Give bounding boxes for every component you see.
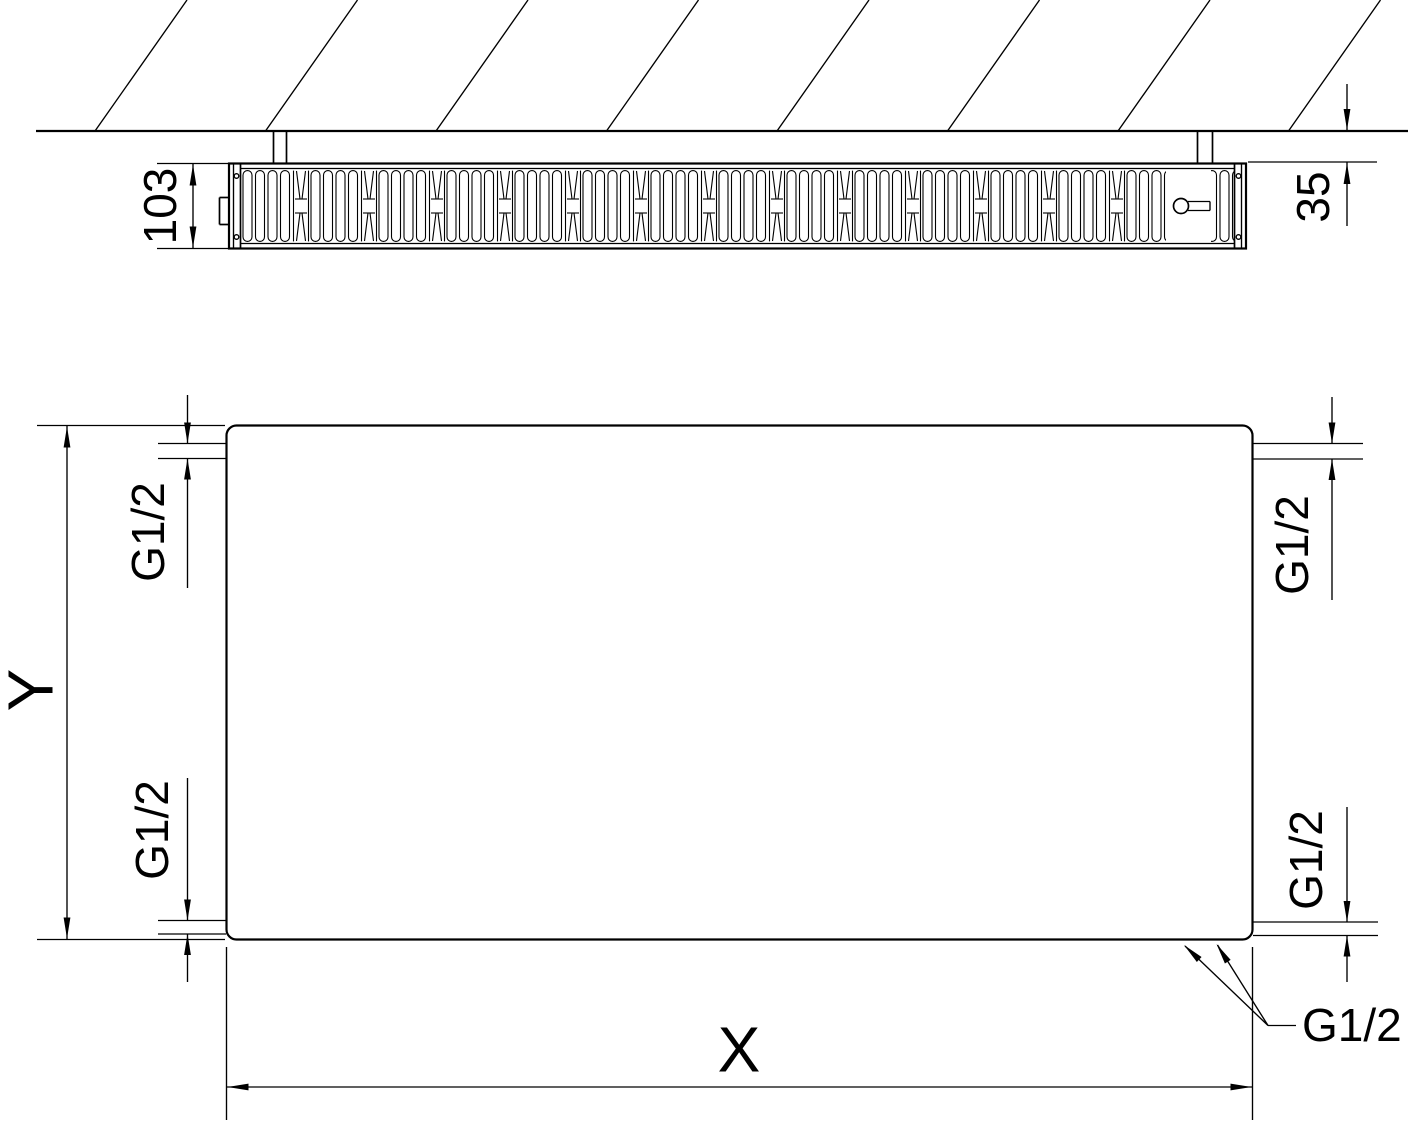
bottom-connections-leader: G1/2 bbox=[1182, 942, 1402, 1051]
arrowhead-down bbox=[190, 227, 197, 248]
arrowhead-down bbox=[184, 900, 191, 921]
width-dimension-value: X bbox=[718, 1013, 761, 1085]
wall-gap-dimension-value: 35 bbox=[1287, 171, 1339, 222]
arrowhead-up bbox=[190, 165, 197, 186]
top-view: 103 35 bbox=[36, 0, 1408, 249]
connection-top-left: G1/2 bbox=[122, 395, 226, 588]
arrowhead-leader bbox=[1214, 942, 1231, 963]
plug-insert bbox=[1174, 199, 1211, 214]
thread-label-bottom-left: G1/2 bbox=[126, 780, 178, 880]
dimension-wall-gap: 35 bbox=[1248, 84, 1377, 226]
thread-label-top-right: G1/2 bbox=[1266, 495, 1318, 595]
hatch-line bbox=[1118, 0, 1210, 131]
arrowhead-down bbox=[64, 918, 71, 939]
side-connection-stub bbox=[220, 198, 230, 225]
radiator-panel-outline bbox=[227, 426, 1253, 940]
convection-fins bbox=[1211, 170, 1234, 242]
arrowhead-up bbox=[184, 934, 191, 955]
connection-bottom-right: G1/2 bbox=[1253, 807, 1378, 982]
hatch-line bbox=[266, 0, 358, 131]
front-view: Y X G1/2 G1/2 bbox=[0, 395, 1402, 1120]
mounting-bracket-left bbox=[274, 131, 287, 164]
arrowhead-down bbox=[184, 423, 191, 444]
thread-label-top-left: G1/2 bbox=[122, 482, 174, 582]
thread-label-leader: G1/2 bbox=[1302, 999, 1402, 1051]
radiator-section bbox=[220, 164, 1247, 249]
arrowhead-up bbox=[64, 427, 71, 448]
radiator-technical-drawing: 103 35 Y X bbox=[0, 0, 1427, 1125]
hatch-line bbox=[607, 0, 699, 131]
convection-fins bbox=[242, 170, 1166, 242]
connection-bottom-left: G1/2 bbox=[126, 778, 226, 982]
hatch-line bbox=[948, 0, 1040, 131]
hatch-line bbox=[777, 0, 869, 131]
height-dimension-value: Y bbox=[0, 669, 66, 712]
plug-circle bbox=[1174, 199, 1189, 214]
arrowhead-down bbox=[1329, 423, 1336, 444]
thread-label-bottom-right: G1/2 bbox=[1280, 810, 1332, 910]
hatch-line bbox=[1289, 0, 1381, 131]
arrowhead-down bbox=[1344, 901, 1351, 922]
end-cap-right bbox=[1235, 165, 1242, 248]
hatch-line bbox=[95, 0, 187, 131]
cap-screw bbox=[234, 235, 239, 240]
dimension-height: Y bbox=[0, 426, 225, 940]
dimension-width: X bbox=[227, 947, 1253, 1120]
cap-screw bbox=[234, 174, 239, 179]
wall-hatch bbox=[95, 0, 1381, 131]
drawing-canvas: 103 35 Y X bbox=[0, 0, 1427, 1125]
arrowhead-down bbox=[1344, 109, 1351, 130]
arrowhead-left bbox=[228, 1084, 249, 1091]
mounting-bracket-right bbox=[1198, 131, 1213, 164]
connection-top-right: G1/2 bbox=[1253, 397, 1363, 600]
arrowhead-up bbox=[1344, 163, 1351, 184]
arrowhead-leader bbox=[1182, 943, 1202, 962]
arrowhead-right bbox=[1231, 1084, 1252, 1091]
arrowhead-up bbox=[1329, 459, 1336, 480]
cap-screw bbox=[1236, 174, 1241, 179]
arrowhead-up bbox=[1344, 936, 1351, 957]
hatch-line bbox=[436, 0, 528, 131]
depth-dimension-value: 103 bbox=[134, 168, 186, 245]
dimension-depth: 103 bbox=[134, 164, 229, 249]
arrowhead-up bbox=[184, 459, 191, 480]
end-cap-left bbox=[234, 165, 241, 248]
cap-screw bbox=[1236, 235, 1241, 240]
